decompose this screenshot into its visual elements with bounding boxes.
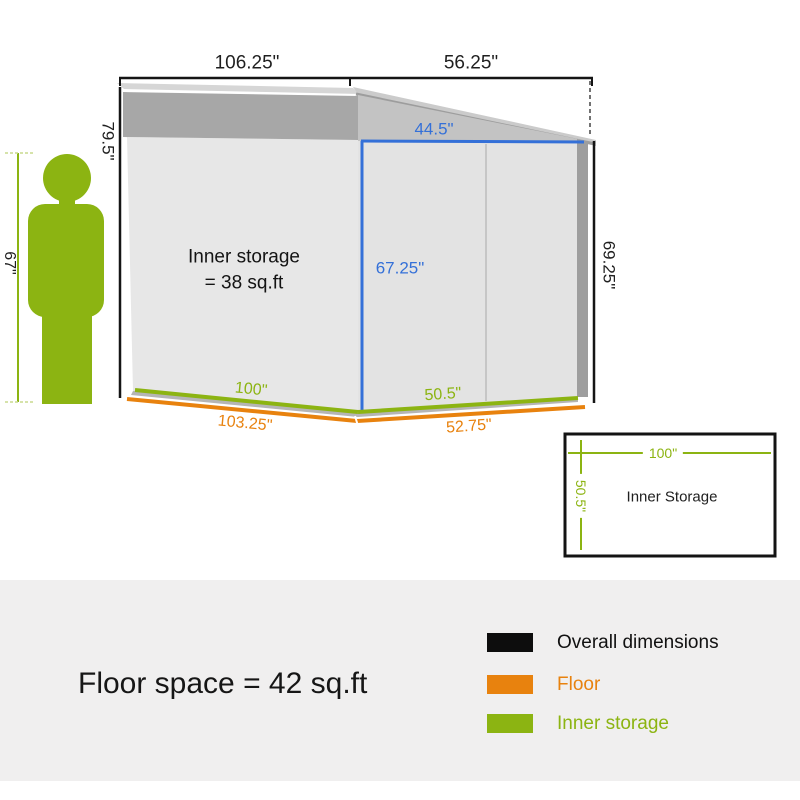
shed-gable [358, 95, 588, 141]
door-width-label: 44.5" [414, 121, 453, 138]
legend-label-floor: Floor [557, 674, 600, 696]
door-height-label: 67.25" [376, 260, 425, 277]
legend-item-overall: Overall dimensions [487, 633, 747, 653]
inner-storage-area-line1: Inner storage [188, 244, 300, 270]
person-torso [28, 204, 104, 317]
shed-roof-top [117, 83, 360, 94]
shed-roof-fascia [123, 92, 358, 140]
person-silhouette [5, 153, 104, 404]
legend-swatch-floor [487, 675, 533, 694]
inner-storage-area-line2: = 38 sq.ft [188, 270, 300, 296]
legend-swatch-overall [487, 633, 533, 652]
floor-depth-label: 52.75" [446, 417, 493, 436]
door-top-line [361, 141, 584, 142]
overall-height-right-label: 69.25" [601, 241, 618, 290]
floor-space-label: Floor space = 42 sq.ft [78, 667, 367, 701]
overall-width-right-label: 56.25" [444, 54, 498, 73]
person-height-label: 67" [1, 251, 17, 274]
overall-height-left-label: 79.5" [100, 121, 117, 160]
legend-item-inner-storage: Inner storage [487, 714, 747, 734]
shed-dimension-diagram: 106.25" 56.25" 79.5" 69.25" 67" 44.5" 67… [0, 0, 800, 800]
person-legs [42, 314, 92, 404]
storage-box-depth-label: 50.5" [574, 474, 588, 518]
overall-width-left-label: 106.25" [215, 54, 280, 73]
inner-floor-depth-label: 50.5" [424, 386, 462, 405]
inner-floor-width-label: 100" [234, 380, 268, 399]
inner-storage-area-label: Inner storage = 38 sq.ft [188, 244, 300, 295]
storage-box-title: Inner Storage [627, 490, 718, 505]
legend-label-overall: Overall dimensions [557, 632, 719, 654]
legend-swatch-inner-storage [487, 714, 533, 733]
footer-band: Floor space = 42 sq.ft Overall dimension… [0, 580, 800, 781]
legend-item-floor: Floor [487, 675, 747, 695]
storage-box-width-label: 100" [643, 446, 683, 460]
legend-label-inner-storage: Inner storage [557, 713, 669, 735]
shed-corner-trim [577, 139, 588, 397]
